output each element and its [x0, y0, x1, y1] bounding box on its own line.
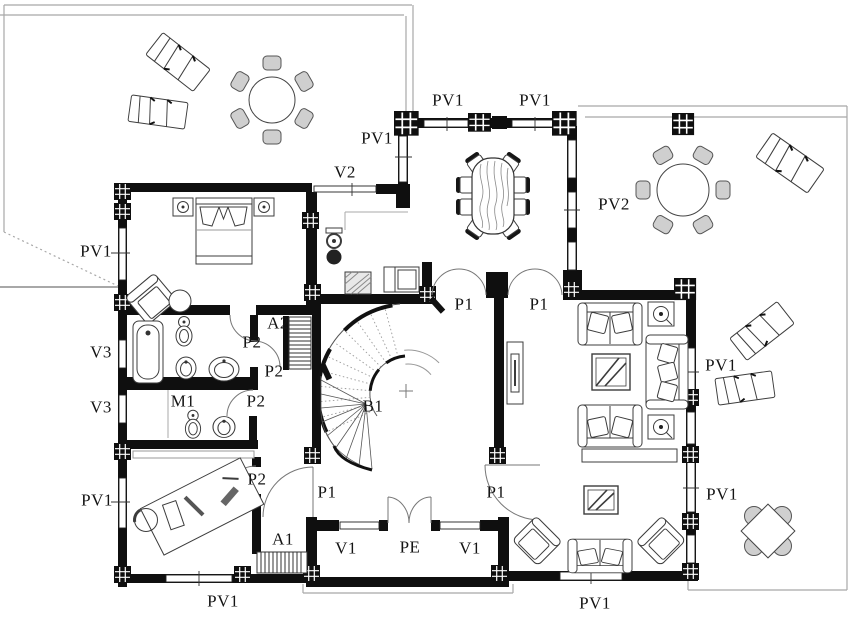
dining-room: [456, 151, 530, 241]
label-m1: M1: [171, 393, 196, 410]
sofa-bottom: [578, 405, 642, 447]
kitchen-sink: [384, 267, 419, 292]
desk: [140, 458, 263, 555]
dining-set: [456, 151, 530, 241]
label-v2: V2: [334, 164, 356, 181]
label-p1-dining-left: P1: [455, 296, 474, 313]
sofa-entry-wall: [568, 539, 632, 573]
label-v3-upper: V3: [90, 344, 112, 361]
sofa-top: [578, 303, 642, 345]
label-pv1-top-a: PV1: [432, 92, 464, 109]
label-p2-m1: P2: [247, 393, 266, 410]
coffee-table-1: [592, 354, 630, 390]
washbasin: [209, 357, 239, 381]
label-pv1-right-upper: PV1: [705, 357, 737, 374]
label-pv1-bottom-center: PV1: [579, 595, 611, 612]
toilet: [185, 410, 200, 438]
label-p1-hall-left: P1: [318, 484, 337, 501]
label-pv2: PV2: [598, 196, 630, 213]
sun-lounger: [715, 371, 775, 405]
door-pe: [388, 497, 431, 523]
nightstand-left: [173, 198, 193, 216]
living-room: [512, 302, 688, 573]
outdoor-table-set: [229, 56, 314, 144]
center-cross-mark: [399, 384, 413, 398]
label-pv1-left-lower: PV1: [81, 492, 113, 509]
door-p1-dining-right: [508, 269, 562, 295]
bathroom: [133, 317, 239, 384]
hall-console: [507, 342, 523, 404]
wc-toilet: [326, 228, 342, 265]
label-v1-right: V1: [459, 540, 481, 557]
stove: [345, 272, 371, 294]
bathtub: [133, 321, 163, 383]
armchair-left: [512, 516, 561, 565]
study: [135, 458, 264, 555]
label-p2-study: P2: [248, 471, 267, 488]
label-v3-lower: V3: [90, 399, 112, 416]
label-pv1-left-upper: PV1: [80, 243, 112, 260]
label-pv1-top-b: PV1: [519, 92, 551, 109]
label-p1-hall-right: P1: [487, 484, 506, 501]
door-p1-hall-left: [263, 467, 313, 517]
label-pv1-top-left: PV1: [361, 130, 393, 147]
kitchenette: [326, 212, 419, 294]
floor-plan-drawing: [0, 0, 850, 620]
label-pv1-right-lower: PV1: [706, 486, 738, 503]
nightstand-right: [254, 198, 274, 216]
label-p2-bath: P2: [243, 334, 262, 351]
wardrobe-a2: [289, 317, 311, 369]
label-pe: PE: [400, 539, 421, 556]
floor-plan: PV1PV1PV1V2PV2PV1V3V3PV1PV1PV1PV1PV1P1P1…: [0, 0, 850, 620]
bidet: [176, 357, 196, 379]
sun-lounger: [146, 32, 211, 91]
label-a2: A2: [267, 315, 289, 332]
label-a1: A1: [272, 531, 294, 548]
door-p1-dining-left: [432, 269, 486, 295]
wardrobe-a1: [257, 552, 307, 573]
lamp-table-bottom: [648, 415, 674, 439]
label-v1-left: V1: [335, 540, 357, 557]
lamp-table-top: [648, 302, 674, 326]
outdoor-square-table-set: [741, 504, 795, 558]
bedroom-side-table: [169, 290, 191, 312]
terrace-top-left: [128, 32, 315, 144]
bidet: [213, 417, 235, 438]
console-sideboard: [582, 449, 677, 462]
sun-lounger: [128, 95, 188, 129]
bed: [196, 198, 252, 264]
label-p2-corridor: P2: [265, 363, 284, 380]
sofa-right: [646, 335, 688, 409]
armchair-right: [636, 516, 685, 565]
sun-lounger: [756, 133, 824, 193]
staircase: [317, 296, 445, 470]
outdoor-table-set: [636, 145, 730, 235]
sun-lounger: [730, 301, 795, 360]
toilet: [176, 317, 192, 347]
coffee-table-2: [584, 486, 618, 514]
label-p1-dining-right: P1: [530, 296, 549, 313]
label-pv1-bottom-left: PV1: [207, 593, 239, 610]
label-b1: B1: [363, 398, 384, 415]
